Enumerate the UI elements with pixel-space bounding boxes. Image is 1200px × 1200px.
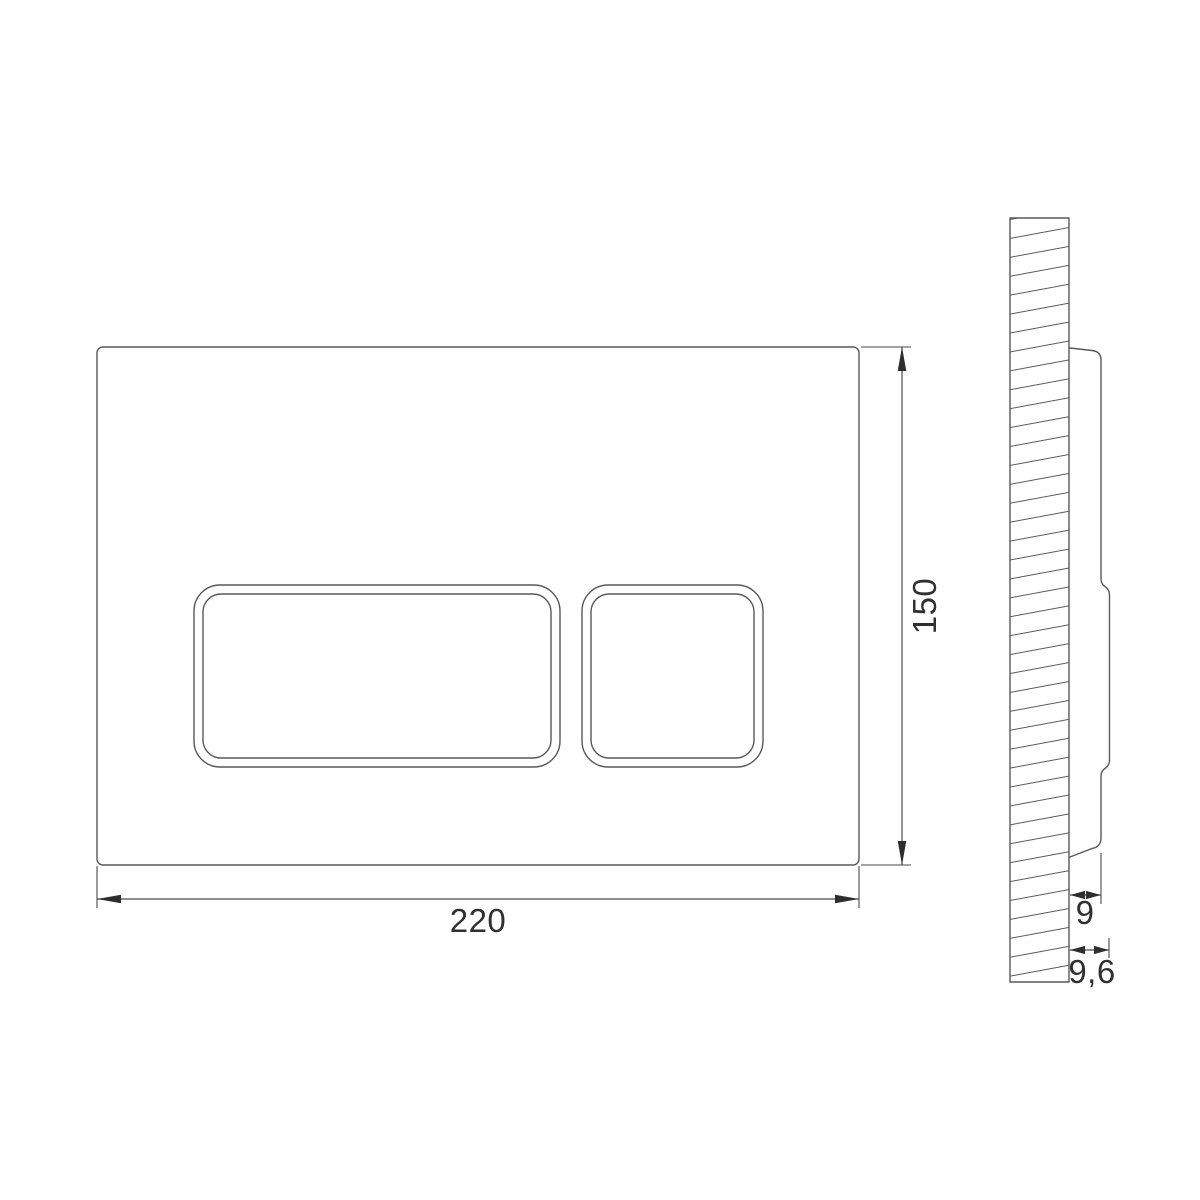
small-flush-button-inner: [591, 594, 754, 758]
arrowhead-right-icon: [835, 895, 859, 904]
width-dimension-label: 220: [450, 902, 507, 939]
arrowhead-left-icon: [97, 895, 121, 904]
total-depth-dimension: 9,6: [1068, 938, 1115, 990]
flush-plate-outline: [97, 347, 859, 865]
flush-plate-technical-drawing: 220 150 9 9,6: [0, 0, 1200, 1200]
arrowhead-down-icon: [898, 841, 907, 865]
plate-depth-dimension: 9: [1070, 853, 1101, 931]
plate-depth-dimension-label: 9: [1076, 894, 1095, 931]
total-depth-dimension-label: 9,6: [1068, 953, 1115, 990]
side-section-view: [1010, 218, 1110, 982]
width-dimension: 220: [97, 866, 859, 939]
large-flush-button-outer: [194, 585, 560, 767]
front-view: [97, 347, 859, 865]
large-flush-button-inner: [203, 594, 551, 758]
height-dimension-label: 150: [906, 578, 943, 635]
arrowhead-up-icon: [898, 347, 907, 371]
small-flush-button-outer: [582, 585, 763, 767]
technical-drawing-page: 220 150 9 9,6: [0, 0, 1200, 1200]
height-dimension: 150: [861, 347, 943, 865]
wall-section: [1010, 218, 1069, 982]
plate-side-profile: [1070, 348, 1110, 857]
